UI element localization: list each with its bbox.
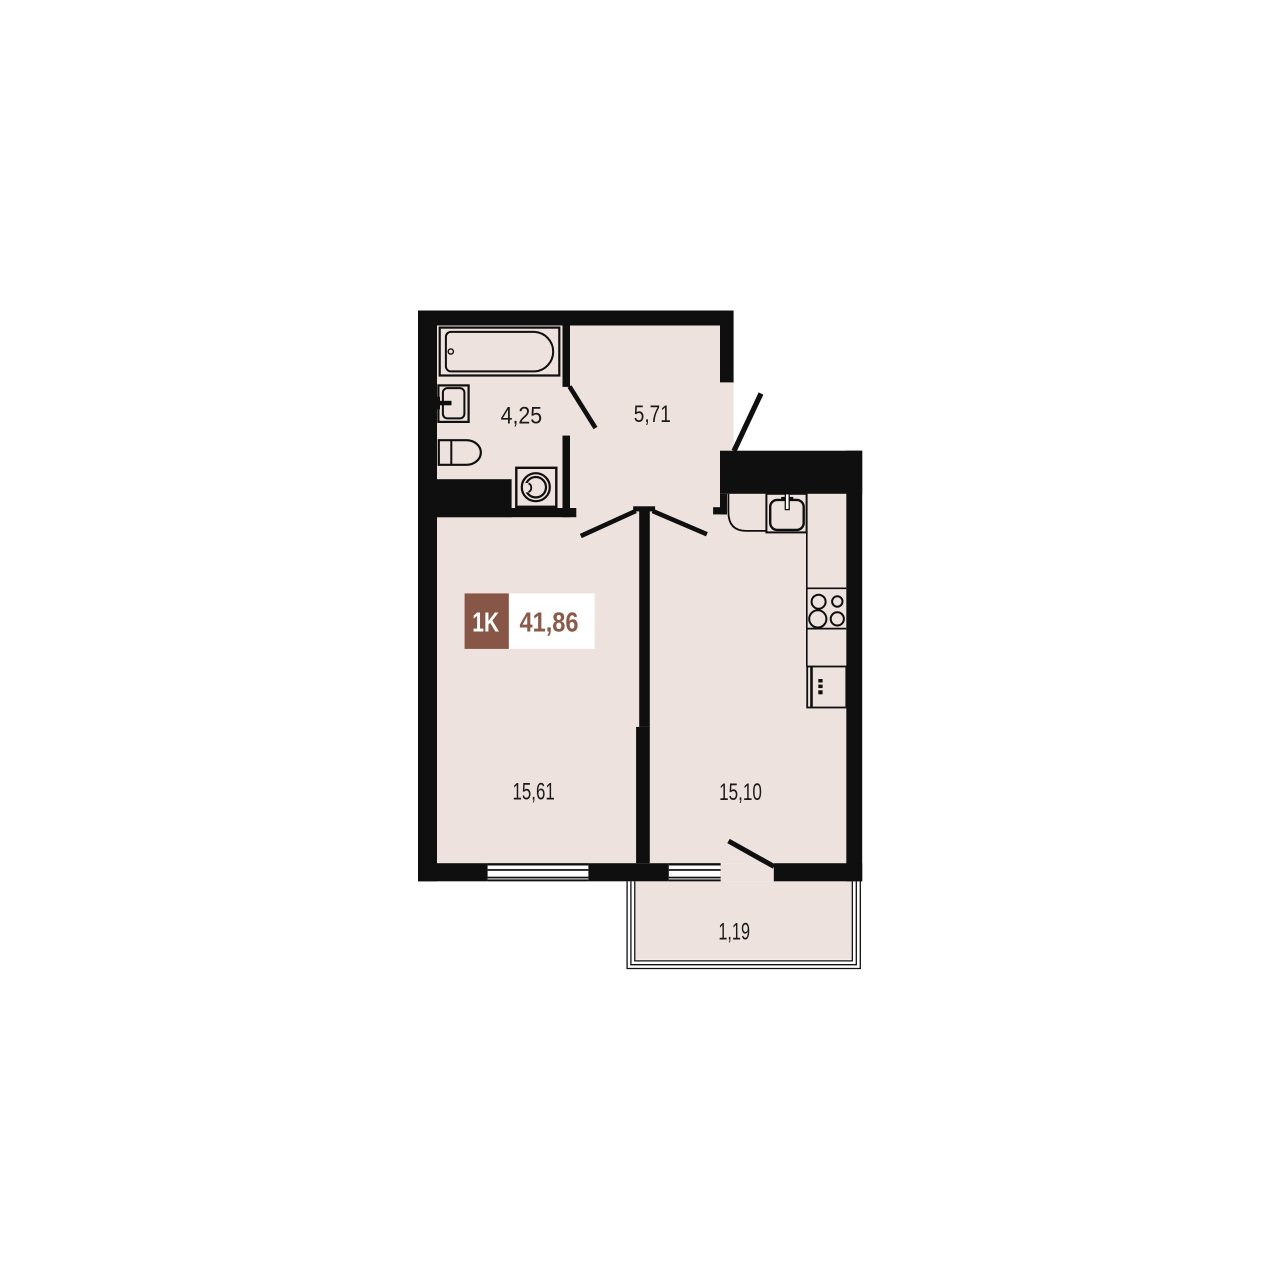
svg-text:4,25: 4,25: [501, 403, 542, 430]
svg-text:15,61: 15,61: [513, 778, 555, 805]
svg-text:15,10: 15,10: [719, 779, 762, 806]
svg-text:1K: 1K: [472, 606, 499, 637]
svg-text:1,19: 1,19: [718, 918, 750, 945]
svg-text:41,86: 41,86: [520, 606, 579, 637]
svg-text:5,71: 5,71: [634, 401, 671, 428]
